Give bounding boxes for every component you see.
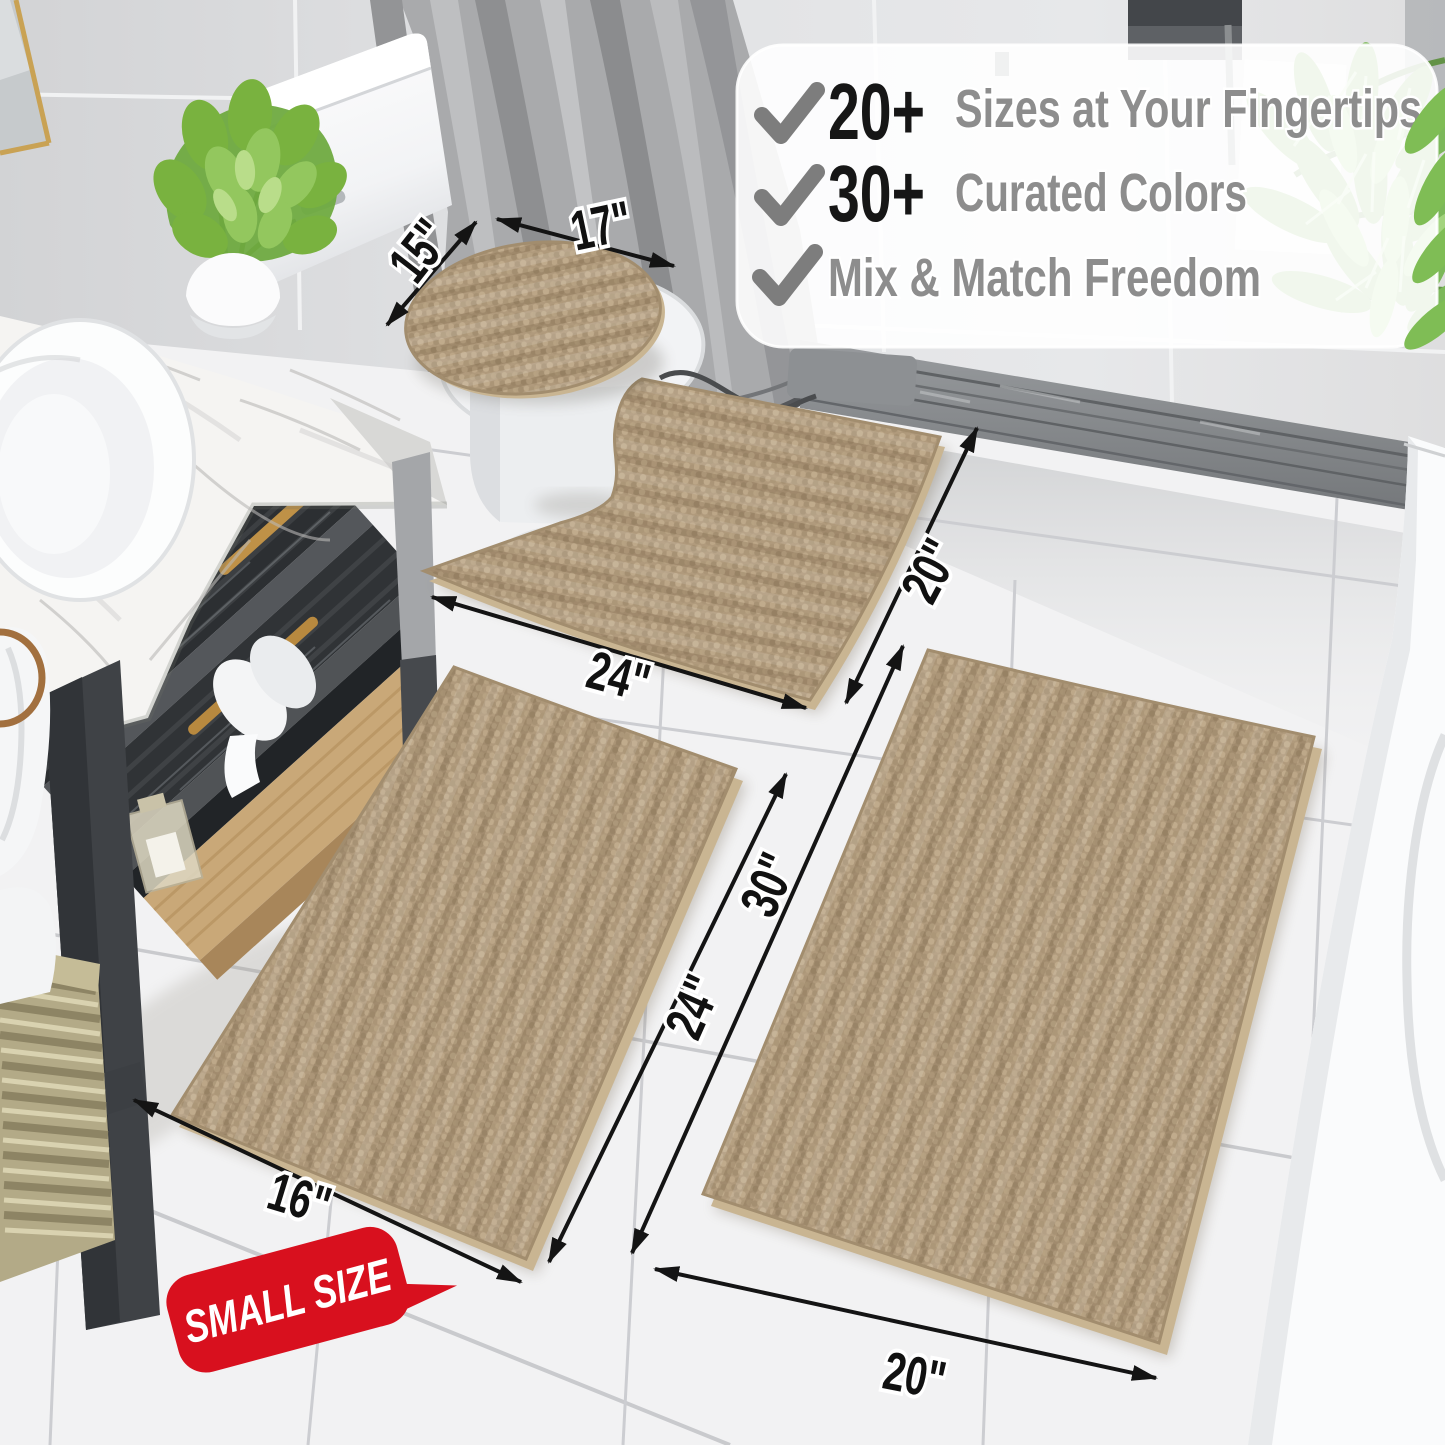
svg-text:Mix & Match Freedom: Mix & Match Freedom [828,248,1261,308]
svg-text:30+: 30+ [828,149,925,238]
svg-text:20+: 20+ [828,67,925,156]
svg-text:Sizes at Your Fingertips: Sizes at Your Fingertips [955,79,1422,139]
svg-text:17": 17" [565,188,637,262]
svg-text:Curated Colors: Curated Colors [955,163,1247,223]
svg-text:20": 20" [878,1341,950,1412]
